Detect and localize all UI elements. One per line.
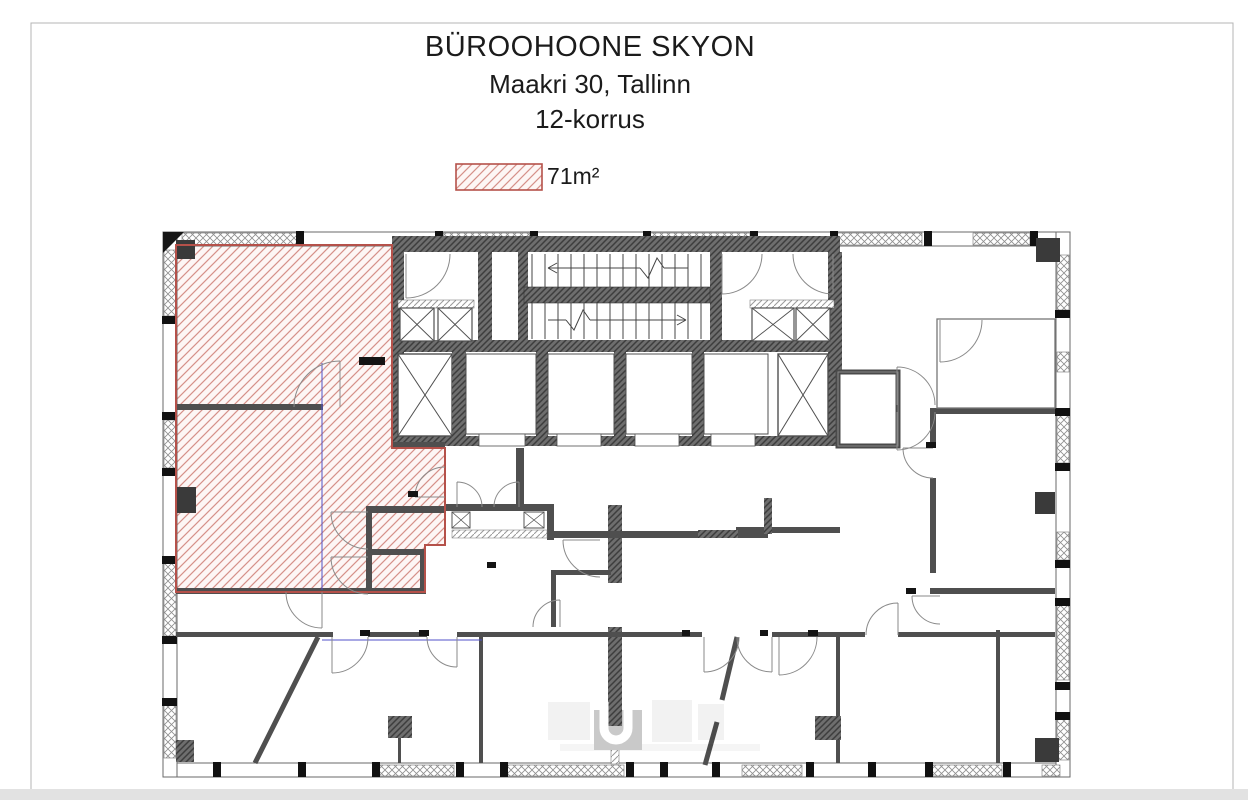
plan-sheet: BÜROOHOONE SKYON Maakri 30, Tallinn 12-k…	[0, 0, 1248, 800]
address-line: Maakri 30, Tallinn	[0, 67, 1180, 102]
elevator-shafts	[398, 308, 830, 446]
floor-line: 12-korrus	[0, 102, 1180, 137]
leased-area-swatch	[455, 163, 543, 191]
page-title: BÜROOHOONE SKYON	[0, 28, 1180, 67]
legend: Üüripind 71m²	[455, 163, 599, 190]
watermark-remnant	[548, 680, 760, 751]
sheet-bottom-strip	[0, 789, 1248, 800]
elevator-cabins	[452, 352, 768, 446]
title-block: BÜROOHOONE SKYON Maakri 30, Tallinn 12-k…	[0, 28, 1180, 137]
